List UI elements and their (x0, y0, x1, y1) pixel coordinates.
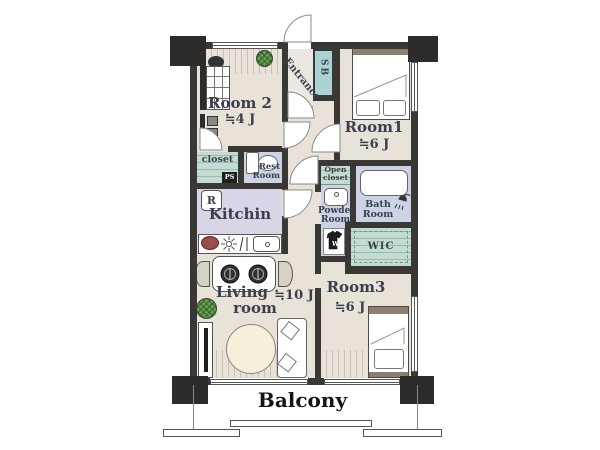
balcony-post-line-left (193, 385, 194, 429)
wall (345, 266, 411, 274)
pillar-bottom-left (172, 376, 208, 404)
entrance-door-arc (284, 15, 311, 42)
powder-room-line2: Room (318, 216, 353, 225)
sofa (277, 318, 307, 378)
bath-room-line2: Room (356, 210, 400, 220)
living-size: ≒10 J (272, 289, 316, 303)
entrance-label-wrap: Entrance (280, 52, 322, 110)
balcony-plate-left (163, 429, 240, 437)
plant-icon-living (196, 298, 217, 319)
rest-room-line2: Room (244, 172, 280, 181)
closet-label: closet (197, 155, 238, 165)
bathtub-icon (360, 170, 408, 196)
bed-icon-room3 (368, 306, 409, 378)
ps-chip: PS (222, 172, 237, 183)
balcony-railing (230, 420, 372, 427)
powder-room-label: Powder Room (318, 207, 353, 226)
room1-name: Room1 (336, 120, 412, 136)
pillow-icon-3 (374, 349, 404, 369)
room3-balcony-window (324, 379, 400, 385)
pillar-top-right (408, 36, 438, 62)
kitchen-sink-icon (253, 236, 280, 252)
room2-name: Room 2 (200, 96, 280, 112)
bed-icon-room1 (352, 46, 410, 120)
dining-chair-left (195, 261, 210, 287)
wic-label: WIC (351, 242, 411, 253)
wall (334, 152, 340, 160)
plant-icon-room2 (256, 50, 273, 67)
stool-icon-2 (207, 128, 218, 138)
balcony-label: Balcony (240, 390, 365, 411)
pot-icon (201, 236, 219, 250)
room3-name: Room3 (321, 280, 391, 296)
room1-size: ≒6 J (336, 138, 412, 152)
balcony-post-line-right (417, 385, 418, 429)
wall (345, 222, 411, 228)
wall (278, 42, 288, 49)
living-balcony-window (210, 379, 308, 385)
room2-size: ≒4 J (200, 113, 280, 127)
wall (411, 112, 418, 296)
dining-chair-right (278, 261, 293, 287)
floor-plan: SB R (0, 0, 600, 450)
open-closet-label: Open closet (320, 166, 351, 182)
wall (228, 146, 282, 152)
powder-sink-drain (334, 192, 339, 197)
pillow-icon (356, 100, 380, 116)
room2-window (212, 42, 278, 49)
wall (315, 256, 350, 262)
entrance-label: Entrance (281, 56, 322, 103)
room3-size: ≒6 J (321, 301, 379, 315)
room1-window (411, 62, 418, 112)
wall-left (190, 42, 197, 385)
wall (334, 49, 340, 124)
kitchen-name: Kitchin (197, 207, 283, 223)
tv-icon (204, 328, 208, 372)
pillar-top-left (170, 36, 206, 66)
tv-board (198, 322, 213, 378)
bath-room-label: Bath Room (356, 200, 400, 220)
powder-sink-icon (324, 188, 348, 206)
round-table (226, 324, 276, 374)
rest-room-label: Rest Room (244, 163, 280, 181)
wall (308, 378, 324, 385)
pillow-icon-2 (383, 100, 406, 116)
open-closet-line2: closet (320, 174, 351, 182)
wall (315, 224, 321, 274)
washer-box (323, 228, 345, 255)
balcony-plate-right (363, 429, 442, 437)
sink-drain-icon (265, 242, 270, 247)
living-name-line2: room (216, 301, 294, 317)
room3-window (411, 296, 418, 372)
wall (311, 42, 418, 49)
